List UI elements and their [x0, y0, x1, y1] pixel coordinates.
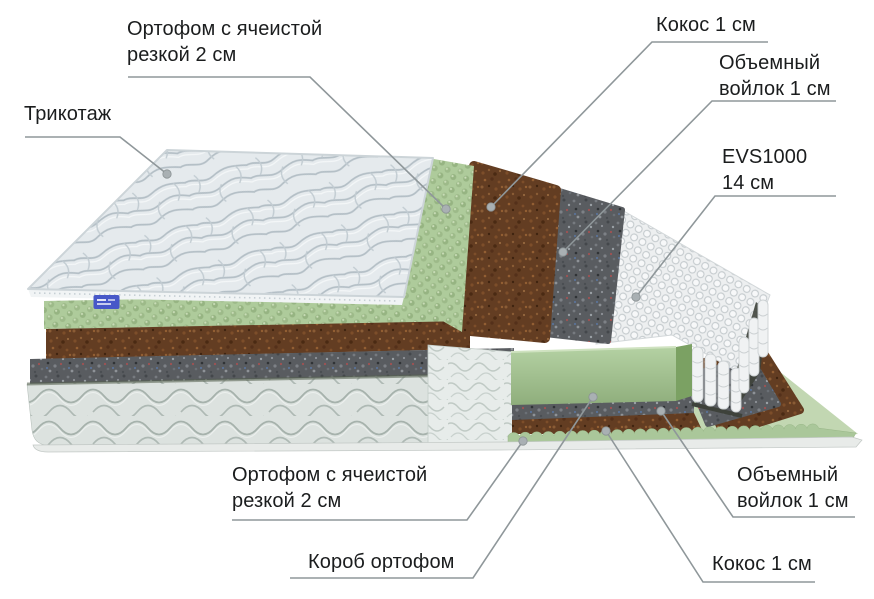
leader-dot-evs	[632, 293, 640, 301]
label-line: Объемный	[719, 50, 831, 76]
layer-coconut-top	[460, 166, 556, 338]
leader-tricot	[25, 137, 167, 174]
label-line: Ортофом с ячеистой	[127, 16, 322, 42]
leader-dot-felt-bottom	[657, 407, 665, 415]
label-box: Короб ортофом	[308, 549, 455, 575]
label-orthofoam-bottom: Ортофом с ячеистой резкой 2 см	[232, 462, 427, 514]
leader-dot-coconut-top	[487, 203, 495, 211]
leader-dot-box	[589, 393, 597, 401]
label-felt-top: Объемный войлок 1 см	[719, 50, 831, 102]
label-orthofoam-top: Ортофом с ячеистой резкой 2 см	[127, 16, 322, 68]
label-felt-bottom: Объемный войлок 1 см	[737, 462, 849, 514]
label-line: 14 см	[722, 170, 807, 196]
label-line: резкой 2 см	[232, 488, 427, 514]
mattress-diagram: Трикотаж Ортофом с ячеистой резкой 2 см …	[0, 0, 874, 599]
leader-dot-tricot	[163, 170, 171, 178]
label-line: Ортофом с ячеистой	[232, 462, 427, 488]
brand-tag	[94, 295, 120, 309]
label-line: войлок 1 см	[737, 488, 849, 514]
foam-box-side-face	[676, 344, 692, 401]
layer-fabric-top	[28, 150, 433, 297]
box-cut-face	[428, 345, 514, 443]
label-line: войлок 1 см	[719, 76, 831, 102]
leader-dot-orthofoam-top	[442, 205, 450, 213]
leader-dot-orthofoam-bottom	[519, 437, 527, 445]
label-coconut-bottom: Кокос 1 см	[712, 551, 812, 577]
label-coconut-top: Кокос 1 см	[656, 12, 756, 38]
leader-dot-felt-top	[559, 248, 567, 256]
label-line: EVS1000	[722, 144, 807, 170]
leader-dot-coconut-bottom	[602, 427, 610, 435]
label-tricot: Трикотаж	[24, 101, 111, 127]
label-line: резкой 2 см	[127, 42, 322, 68]
label-evs: EVS1000 14 см	[722, 144, 807, 196]
label-line: Объемный	[737, 462, 849, 488]
